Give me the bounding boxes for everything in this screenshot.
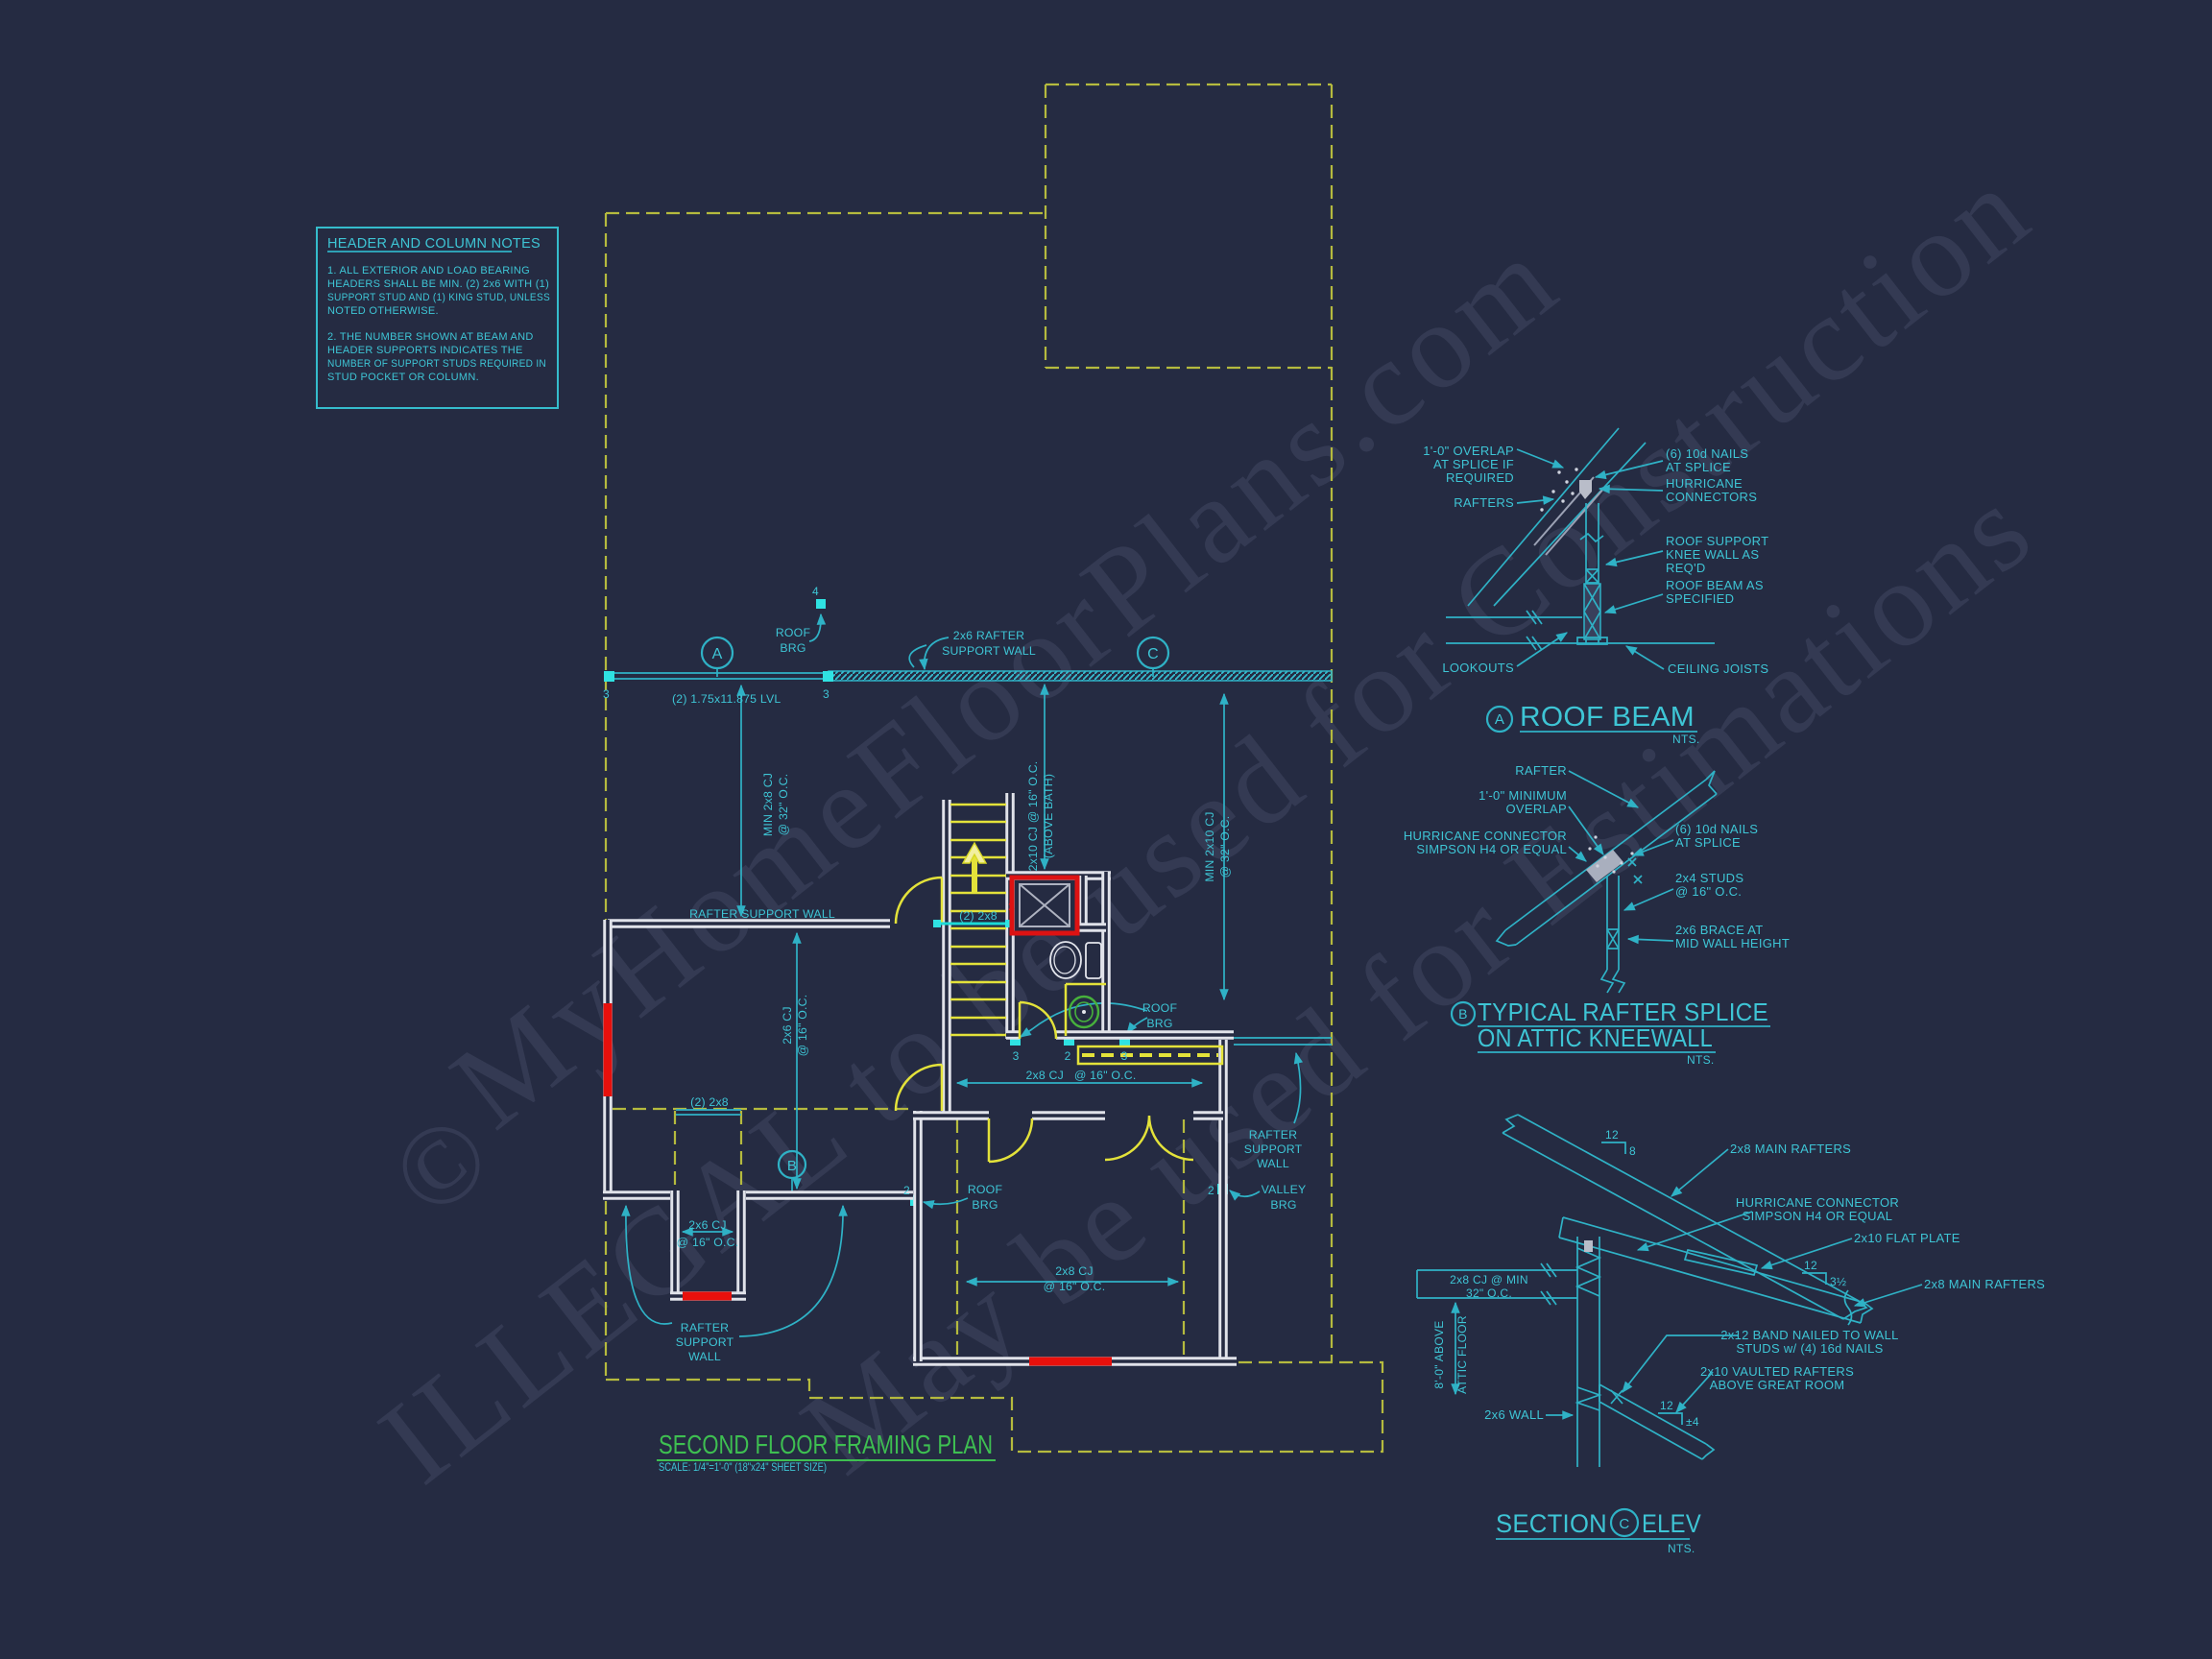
svg-text:MIN 2x8 CJ: MIN 2x8 CJ [761, 773, 775, 836]
svg-text:2x8 CJ: 2x8 CJ [1055, 1264, 1093, 1278]
svg-text:(6) 10d NAILS: (6) 10d NAILS [1675, 822, 1758, 836]
svg-text:RAFTER SUPPORT WALL: RAFTER SUPPORT WALL [689, 907, 835, 921]
svg-text:2: 2 [1065, 1049, 1071, 1063]
svg-text:3½: 3½ [1830, 1275, 1846, 1288]
svg-text:ATTIC FLOOR: ATTIC FLOOR [1455, 1315, 1469, 1394]
svg-text:SUPPORT: SUPPORT [1244, 1142, 1303, 1156]
svg-text:NTS.: NTS. [1668, 1542, 1695, 1555]
svg-text:MIN 2x10 CJ: MIN 2x10 CJ [1203, 811, 1216, 881]
svg-text:B: B [1458, 1006, 1468, 1022]
svg-text:ROOF: ROOF [968, 1183, 1003, 1196]
svg-text:(6) 10d NAILS: (6) 10d NAILS [1666, 446, 1748, 461]
svg-text:NTS.: NTS. [1672, 733, 1700, 746]
svg-text:SCALE: 1/4"=1'-0" (18"x24" SHE: SCALE: 1/4"=1'-0" (18"x24" SHEET SIZE) [659, 1460, 827, 1474]
svg-text:2. THE NUMBER SHOWN AT BEAM AN: 2. THE NUMBER SHOWN AT BEAM AND [327, 331, 534, 343]
svg-text:CEILING JOISTS: CEILING JOISTS [1668, 661, 1768, 676]
svg-text:HURRICANE: HURRICANE [1666, 476, 1743, 491]
svg-text:2x10 CJ @ 16" O.C.: 2x10 CJ @ 16" O.C. [1026, 761, 1040, 872]
svg-text:A: A [712, 646, 723, 662]
svg-text:2x6 CJ: 2x6 CJ [688, 1218, 726, 1232]
svg-text:RAFTER: RAFTER [1515, 763, 1567, 778]
svg-text:ON ATTIC KNEEWALL: ON ATTIC KNEEWALL [1478, 1023, 1713, 1052]
svg-text:2: 2 [903, 1184, 910, 1197]
svg-text:4: 4 [812, 585, 819, 598]
svg-text:(ABOVE BATH): (ABOVE BATH) [1042, 774, 1055, 858]
svg-text:NUMBER OF SUPPORT STUDS REQUIR: NUMBER OF SUPPORT STUDS REQUIRED IN [327, 358, 546, 370]
svg-text:12: 12 [1660, 1399, 1673, 1412]
svg-text:3: 3 [1008, 900, 1015, 914]
svg-text:SIMPSON H4 OR EQUAL: SIMPSON H4 OR EQUAL [1416, 842, 1567, 856]
svg-text:REQ'D: REQ'D [1666, 561, 1706, 575]
svg-text:3: 3 [1121, 1049, 1128, 1063]
svg-text:HEADER SUPPORTS INDICATES THE: HEADER SUPPORTS INDICATES THE [327, 345, 523, 356]
svg-text:1'-0" MINIMUM: 1'-0" MINIMUM [1479, 788, 1567, 803]
svg-text:SUPPORT: SUPPORT [676, 1335, 734, 1349]
svg-text:1'-0" OVERLAP: 1'-0" OVERLAP [1423, 444, 1514, 458]
svg-text:2x6 CJ: 2x6 CJ [781, 1006, 794, 1044]
svg-text:±4: ±4 [1686, 1415, 1699, 1429]
svg-text:ROOF: ROOF [1142, 1001, 1178, 1015]
svg-text:BRG: BRG [1146, 1017, 1172, 1030]
svg-text:SPECIFIED: SPECIFIED [1666, 591, 1734, 606]
svg-text:KNEE WALL AS: KNEE WALL AS [1666, 547, 1759, 562]
svg-text:32" O.C.: 32" O.C. [1466, 1286, 1512, 1300]
svg-text:@ 16" O.C.: @ 16" O.C. [1675, 884, 1742, 899]
svg-text:2: 2 [1208, 1184, 1214, 1197]
svg-text:HEADERS SHALL BE MIN. (2) 2x6: HEADERS SHALL BE MIN. (2) 2x6 WITH (1) [327, 278, 549, 290]
svg-text:(2) 2x8: (2) 2x8 [959, 909, 998, 923]
svg-text:NOTED OTHERWISE.: NOTED OTHERWISE. [327, 305, 439, 317]
svg-text:8'-0" ABOVE: 8'-0" ABOVE [1432, 1320, 1446, 1388]
svg-text:NTS.: NTS. [1687, 1053, 1715, 1067]
svg-text:AT SPLICE IF: AT SPLICE IF [1433, 457, 1514, 471]
svg-text:BRG: BRG [1270, 1198, 1296, 1212]
svg-text:12: 12 [1605, 1128, 1619, 1142]
svg-text:3: 3 [1013, 1049, 1020, 1063]
svg-text:8: 8 [1629, 1144, 1636, 1158]
svg-text:HURRICANE CONNECTOR: HURRICANE CONNECTOR [1404, 829, 1567, 843]
svg-text:VALLEY: VALLEY [1262, 1183, 1307, 1196]
svg-text:@ 32" O.C.: @ 32" O.C. [1218, 816, 1232, 878]
svg-text:WALL: WALL [688, 1350, 721, 1363]
svg-text:SECTION: SECTION [1496, 1509, 1607, 1538]
svg-text:RAFTER: RAFTER [681, 1321, 729, 1334]
svg-text:MID WALL HEIGHT: MID WALL HEIGHT [1675, 936, 1790, 950]
svg-text:B: B [787, 1158, 797, 1174]
svg-text:3: 3 [823, 687, 829, 701]
svg-text:REQUIRED: REQUIRED [1446, 470, 1514, 485]
svg-text:OVERLAP: OVERLAP [1505, 802, 1567, 816]
svg-text:2x10 VAULTED RAFTERS: 2x10 VAULTED RAFTERS [1700, 1364, 1854, 1379]
svg-text:(2) 2x8: (2) 2x8 [690, 1095, 729, 1109]
svg-text:SUPPORT STUD AND (1) KING STUD: SUPPORT STUD AND (1) KING STUD, UNLESS [327, 292, 550, 303]
svg-text:AT SPLICE: AT SPLICE [1675, 835, 1741, 850]
svg-text:2x8 CJ @ MIN: 2x8 CJ @ MIN [1450, 1273, 1528, 1286]
svg-text:3: 3 [603, 687, 610, 701]
svg-text:ABOVE GREAT ROOM: ABOVE GREAT ROOM [1710, 1378, 1845, 1392]
svg-text:RAFTER: RAFTER [1249, 1128, 1297, 1142]
svg-text:2x6 WALL: 2x6 WALL [1484, 1407, 1544, 1422]
svg-text:SUPPORT WALL: SUPPORT WALL [942, 644, 1036, 658]
svg-text:2x8 MAIN RAFTERS: 2x8 MAIN RAFTERS [1924, 1277, 2045, 1291]
svg-text:2x8 CJ @ 16" O.C.: 2x8 CJ @ 16" O.C. [1026, 1069, 1137, 1082]
svg-text:ROOF SUPPORT: ROOF SUPPORT [1666, 534, 1768, 548]
svg-text:@ 16" O.C.: @ 16" O.C. [677, 1236, 739, 1249]
svg-text:2x6 BRACE AT: 2x6 BRACE AT [1675, 923, 1764, 937]
svg-text:HEADER AND COLUMN NOTES: HEADER AND COLUMN NOTES [327, 236, 541, 252]
svg-text:(2) 1.75x11.875 LVL: (2) 1.75x11.875 LVL [672, 692, 781, 706]
svg-text:2x12 BAND NAILED TO WALL: 2x12 BAND NAILED TO WALL [1720, 1328, 1898, 1342]
svg-text:ROOF: ROOF [776, 626, 811, 639]
svg-text:ROOF BEAM: ROOF BEAM [1520, 702, 1695, 733]
svg-text:CONNECTORS: CONNECTORS [1666, 490, 1757, 504]
svg-text:A: A [1495, 711, 1504, 728]
svg-text:RAFTERS: RAFTERS [1454, 495, 1514, 510]
svg-text:BRG: BRG [780, 641, 805, 655]
svg-text:STUDS w/ (4) 16d NAILS: STUDS w/ (4) 16d NAILS [1736, 1341, 1883, 1356]
svg-text:@ 32" O.C.: @ 32" O.C. [777, 774, 790, 836]
svg-text:C: C [1147, 646, 1159, 662]
svg-text:SIMPSON H4 OR EQUAL: SIMPSON H4 OR EQUAL [1743, 1209, 1893, 1223]
svg-text:12: 12 [1804, 1259, 1817, 1272]
svg-text:2x10 FLAT PLATE: 2x10 FLAT PLATE [1854, 1231, 1960, 1245]
svg-text:TYPICAL RAFTER SPLICE: TYPICAL RAFTER SPLICE [1478, 998, 1768, 1026]
svg-text:HURRICANE CONNECTOR: HURRICANE CONNECTOR [1736, 1195, 1899, 1210]
svg-text:LOOKOUTS: LOOKOUTS [1442, 661, 1514, 675]
svg-text:ROOF BEAM AS: ROOF BEAM AS [1666, 578, 1764, 592]
svg-text:2x4 STUDS: 2x4 STUDS [1675, 871, 1743, 885]
svg-text:WALL: WALL [1257, 1157, 1289, 1170]
svg-text:SECOND FLOOR FRAMING PLAN: SECOND FLOOR FRAMING PLAN [659, 1430, 993, 1459]
svg-text:AT SPLICE: AT SPLICE [1666, 460, 1731, 474]
svg-text:2x6 RAFTER: 2x6 RAFTER [953, 629, 1024, 642]
svg-text:2x8 MAIN RAFTERS: 2x8 MAIN RAFTERS [1730, 1142, 1851, 1156]
svg-text:C: C [1619, 1516, 1629, 1532]
svg-text:@ 16" O.C.: @ 16" O.C. [796, 995, 809, 1057]
svg-text:STUD POCKET OR COLUMN.: STUD POCKET OR COLUMN. [327, 372, 479, 383]
svg-text:1. ALL EXTERIOR AND LOAD BEARI: 1. ALL EXTERIOR AND LOAD BEARING [327, 265, 530, 276]
svg-text:ELEV: ELEV [1642, 1509, 1701, 1538]
svg-text:BRG: BRG [972, 1198, 998, 1212]
svg-text:@ 16" O.C.: @ 16" O.C. [1044, 1280, 1106, 1293]
